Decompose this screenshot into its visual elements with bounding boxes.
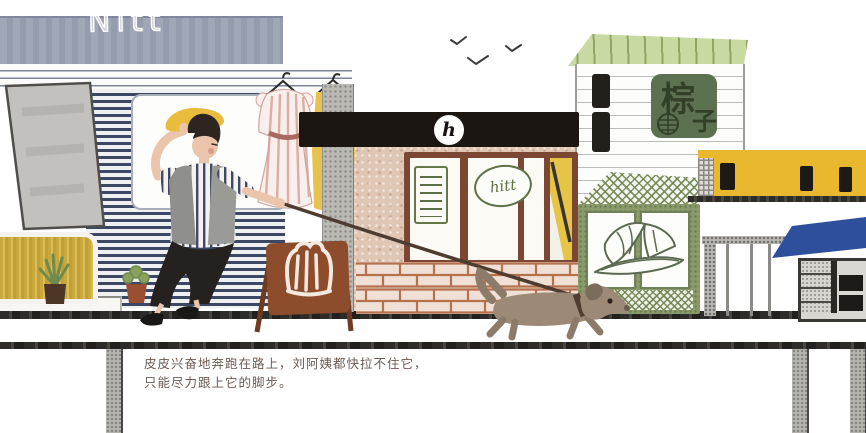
sandwich-board-sign — [257, 241, 351, 332]
figure-layer — [0, 0, 866, 433]
storybook-illustration-page: { "caption": { "line1": "皮皮兴奋地奔跑在路上，刘阿姨都… — [0, 0, 866, 433]
birds-icon — [451, 37, 521, 64]
dog — [479, 272, 630, 337]
